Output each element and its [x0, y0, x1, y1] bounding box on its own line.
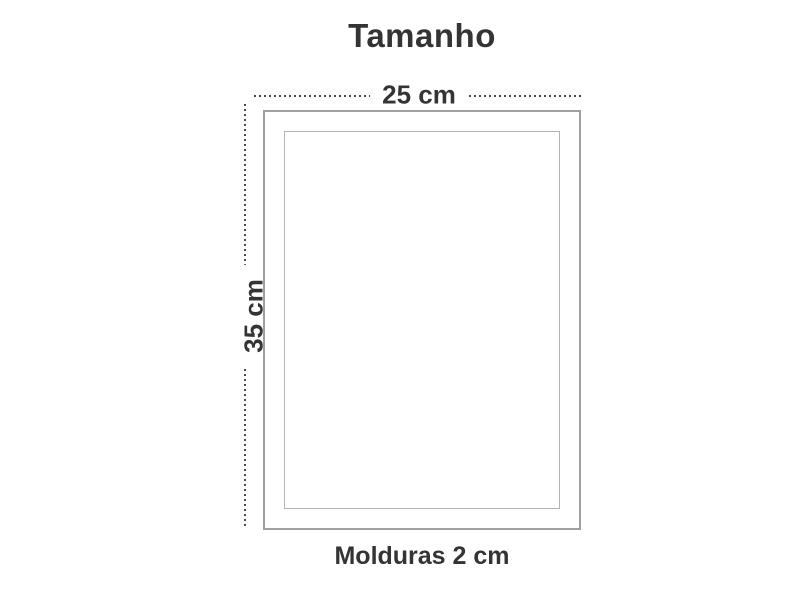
height-dimension-line: 35 cm	[244, 104, 246, 528]
size-diagram: Tamanho 25 cm 35 cm Molduras 2 cm	[0, 0, 810, 590]
picture-frame-outer	[263, 110, 581, 530]
diagram-title: Tamanho	[263, 17, 581, 55]
width-dimension-line: 25 cm	[254, 95, 584, 97]
picture-frame-inner	[284, 131, 560, 509]
frame-thickness-caption: Molduras 2 cm	[263, 542, 581, 571]
width-dimension-label: 25 cm	[370, 79, 468, 110]
